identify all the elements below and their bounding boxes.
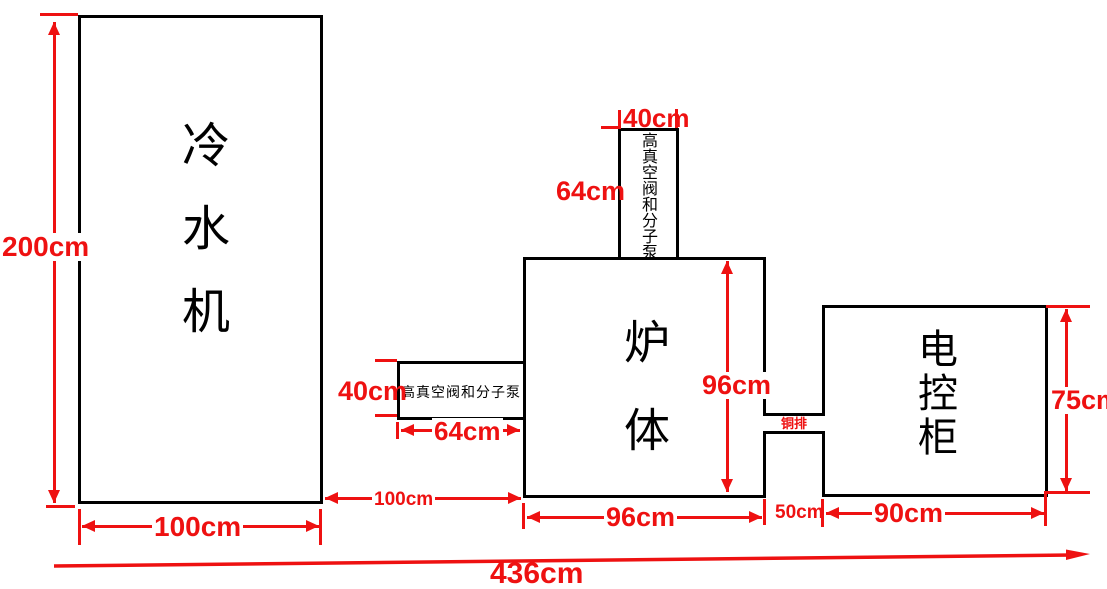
dim-tick xyxy=(375,414,397,417)
dim-tick xyxy=(763,499,766,525)
dim-tick xyxy=(1044,494,1047,526)
furnace-width-label: 96cm xyxy=(604,504,677,531)
side-pump-width-label: 64cm xyxy=(432,418,503,444)
furnace-label: 炉体 xyxy=(621,318,667,494)
dim-tick xyxy=(396,422,399,439)
dim-tick xyxy=(319,509,322,545)
top-pump-height-label: 64cm xyxy=(554,178,627,205)
busbar-width-label: 50cm xyxy=(773,503,826,522)
dim-tick xyxy=(1046,305,1090,308)
busbar-label: 铜排 xyxy=(781,417,807,430)
top-pump-label: 高真空阀和分子泵 xyxy=(639,132,655,260)
busbar-box: 铜排 xyxy=(763,413,825,434)
side-pump-label: 高真空阀和分子泵 xyxy=(396,385,526,399)
cabinet-label: 电控柜 xyxy=(914,328,954,460)
chiller-width-label: 100cm xyxy=(152,513,243,541)
dim-tick xyxy=(46,505,75,508)
dim-tick xyxy=(78,509,81,545)
cabinet-width-label: 90cm xyxy=(872,500,945,527)
chiller-height-arrow xyxy=(53,22,56,503)
side-pump-height-label: 40cm xyxy=(336,378,409,405)
dim-tick xyxy=(1044,491,1090,494)
cabinet-height-label: 75cm xyxy=(1049,387,1107,414)
chiller-height-label: 200cm xyxy=(0,233,91,261)
gap-label: 100cm xyxy=(372,490,435,509)
dim-tick xyxy=(40,13,78,16)
dim-tick xyxy=(375,359,397,362)
furnace-height-label: 96cm xyxy=(700,372,773,399)
equipment-layout-diagram: 冷水机 炉体 电控柜 高真空阀和分子泵 高真空阀和分子泵 铜排 200cm 10… xyxy=(0,0,1107,589)
chiller-label: 冷水机 xyxy=(176,120,224,369)
top-pump-width-label: 40cm xyxy=(621,105,692,131)
dim-tick xyxy=(522,503,525,529)
total-length-label: 436cm xyxy=(488,559,585,589)
